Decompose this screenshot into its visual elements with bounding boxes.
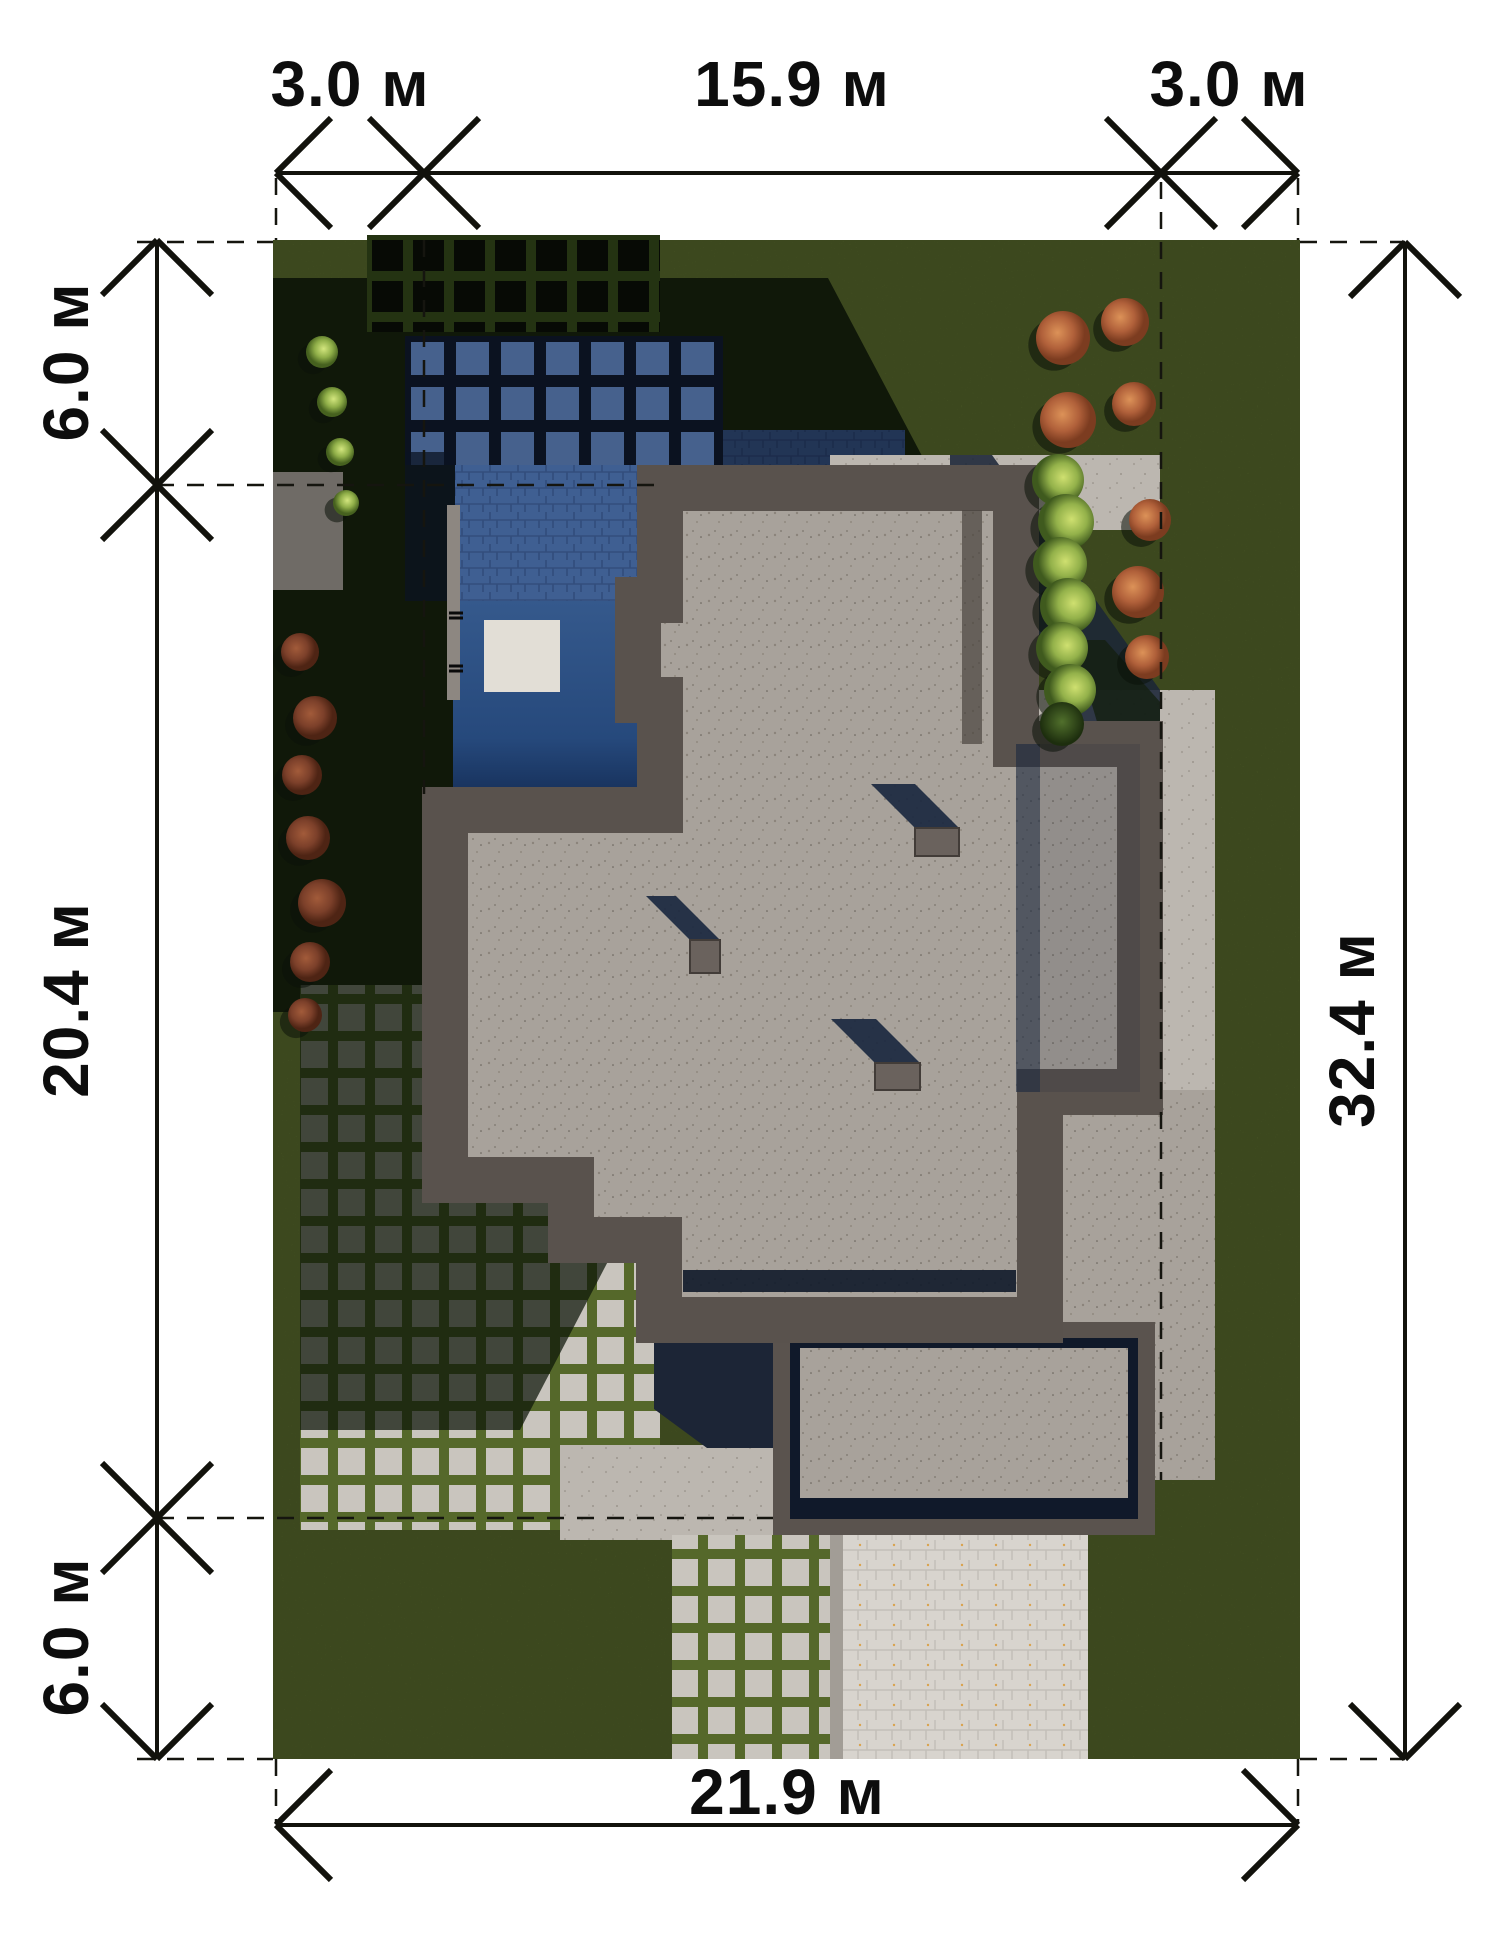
orange-tree [1112,566,1164,618]
roof-box [875,1063,920,1090]
pool-cover-pad [484,620,560,692]
roof-box [690,940,720,973]
orange-tree [1101,298,1149,346]
bush-tree [333,490,359,516]
bush-tree [317,387,347,417]
red-tree [286,816,330,860]
red-tree [298,879,346,927]
dim-right-lot-depth: 32.4 м [1320,932,1384,1128]
driveway [672,1535,1088,1759]
red-tree [290,942,330,982]
orange-tree [1040,392,1096,448]
orange-tree [1129,499,1171,541]
hedgedark-tree [1040,702,1084,746]
left-walkway [273,472,343,590]
bush-tree [306,336,338,368]
paver-drive-strip [672,1535,830,1759]
orange-tree [1036,311,1090,365]
dim-left-building-depth: 20.4 м [34,902,98,1098]
site-plan-canvas: 3.0 м 15.9 м 3.0 м 6.0 м 20.4 м 6.0 м 32… [0,0,1500,1940]
orange-tree [1112,382,1156,426]
bush-tree [326,438,354,466]
dim-top-building-width: 15.9 м [694,52,890,116]
roof-box [915,828,959,856]
red-tree [288,998,322,1032]
red-tree [293,696,337,740]
dim-left-front-setback: 6.0 м [34,282,98,441]
dim-top-left-setback: 3.0 м [270,52,429,116]
dim-top-right-setback: 3.0 м [1149,52,1308,116]
dim-bottom-lot-width: 21.9 м [689,1760,885,1824]
dim-left-back-setback: 6.0 м [34,1557,98,1716]
red-tree [282,755,322,795]
site-plan-drawing [0,0,1500,1940]
red-tree [281,633,319,671]
driveway-pavement [843,1535,1088,1759]
pergola-structure [367,235,660,332]
orange-tree [1125,635,1169,679]
